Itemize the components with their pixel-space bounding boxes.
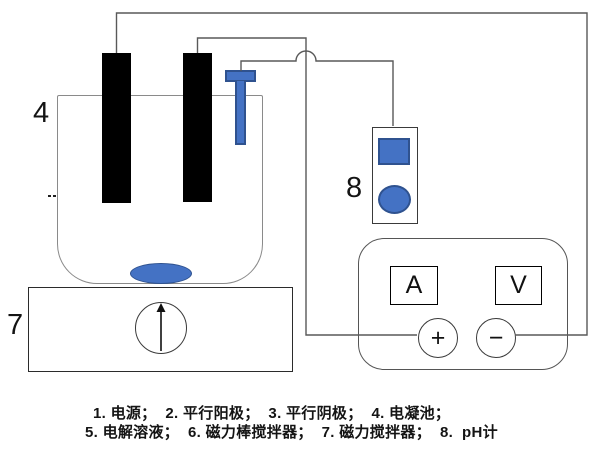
power-supply-body: A V + −	[358, 238, 568, 370]
caption-line-2: 5. 电解溶液； 6. 磁力棒搅拌器； 7. 磁力搅拌器； 8. pH计	[85, 424, 498, 442]
ammeter: A	[390, 266, 438, 305]
voltmeter-label: V	[510, 271, 527, 300]
negative-terminal-label: −	[489, 324, 504, 353]
ph-meter-body	[372, 127, 418, 224]
caption-line-1: 1. 电源； 2. 平行阳极； 3. 平行阴极； 4. 电凝池；	[93, 405, 450, 423]
positive-terminal-label: +	[431, 324, 446, 353]
positive-terminal: +	[418, 318, 458, 358]
callout-ph-meter: 8	[346, 174, 362, 203]
callout-stirrer: 7	[7, 311, 23, 340]
electrocoagulation-cell-beaker	[57, 95, 263, 284]
ammeter-label: A	[406, 271, 423, 300]
ph-meter-button	[378, 185, 411, 214]
ph-meter-display	[378, 138, 410, 165]
electrocoagulation-setup-diagram: A V + − 4 3 2 5 6 7 8 1 1. 电源； 2. 平行阳极； …	[0, 0, 600, 476]
stirrer-dial-knob	[135, 302, 187, 354]
probe-to-ph-meter-wire	[241, 51, 393, 126]
magnetic-stir-bar	[130, 263, 192, 284]
parallel-anode-electrode	[183, 53, 212, 202]
callout-cell: 4	[33, 99, 49, 128]
parallel-cathode-electrode	[102, 53, 131, 203]
ph-probe-stem	[235, 81, 246, 145]
voltmeter: V	[495, 266, 542, 305]
negative-terminal: −	[476, 318, 516, 358]
